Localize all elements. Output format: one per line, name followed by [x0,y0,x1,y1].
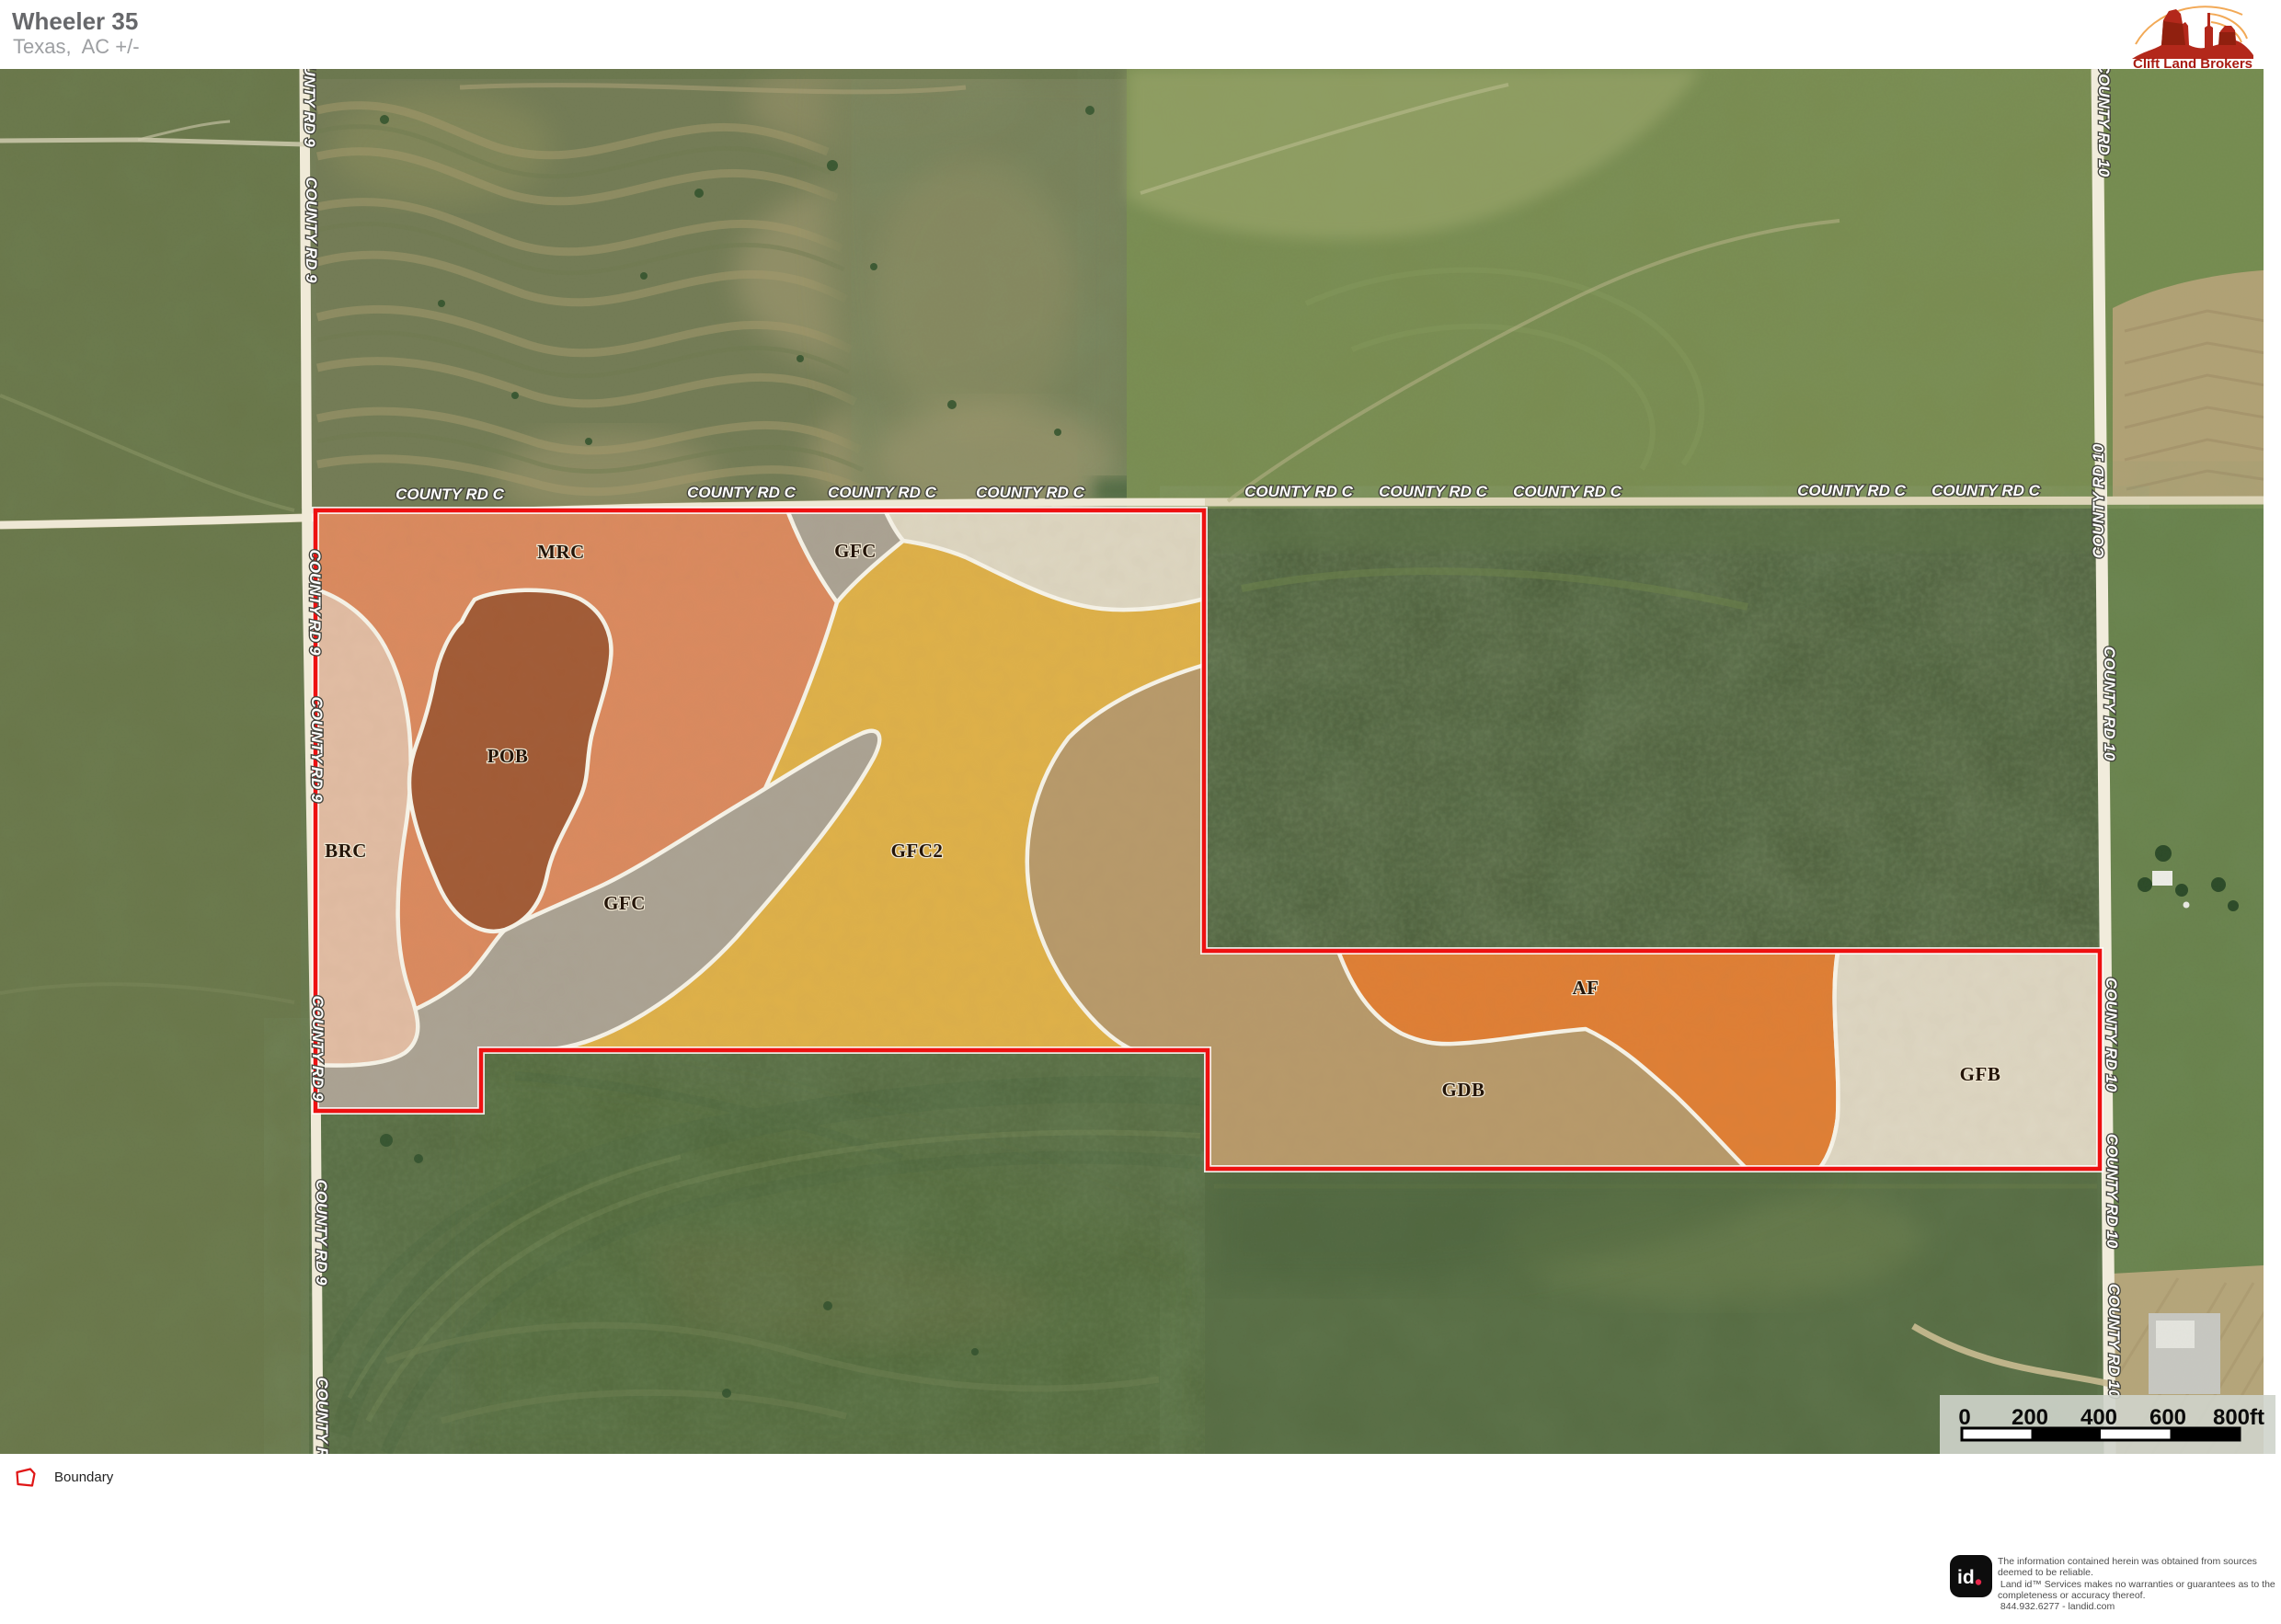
svg-text:COUNTY RD 9: COUNTY RD 9 [308,697,326,803]
svg-text:GFC2: GFC2 [891,840,944,862]
svg-text:id: id [1957,1567,1975,1588]
svg-text:800ft: 800ft [2213,1405,2264,1430]
svg-text:0: 0 [1958,1405,1970,1430]
svg-text:GFC: GFC [603,892,646,914]
svg-text:COUNTY RD 9: COUNTY RD 9 [306,550,324,656]
svg-text:GFC: GFC [834,540,877,562]
svg-text:COUNTY RD 10: COUNTY RD 10 [2103,978,2120,1092]
svg-text:COUNTY RD C: COUNTY RD C [1379,483,1487,500]
svg-text:COUNTY RD 10: COUNTY RD 10 [2090,443,2107,558]
svg-text:400: 400 [2080,1405,2117,1430]
svg-text:COUNTY RD C: COUNTY RD C [976,484,1084,501]
svg-text:200: 200 [2012,1405,2048,1430]
svg-text:AF: AF [1573,977,1599,999]
svg-text:COUNTY RD 10: COUNTY RD 10 [2095,69,2113,177]
svg-text:COUNTY RD 9: COUNTY RD 9 [313,1180,330,1286]
svg-text:COUNTY RD 10: COUNTY RD 10 [2101,646,2118,761]
svg-text:UNTY RD 9: UNTY RD 9 [301,69,318,147]
svg-text:POB: POB [487,745,529,767]
svg-text:COUNTY RD C: COUNTY RD C [1797,482,1906,499]
svg-text:COUNTY RD 9: COUNTY RD 9 [309,996,327,1102]
svg-text:MRC: MRC [537,541,585,563]
svg-text:GDB: GDB [1441,1079,1484,1101]
svg-text:COUNTY RD C: COUNTY RD C [1931,482,2040,499]
svg-text:COUNTY RD 10: COUNTY RD 10 [2105,1284,2123,1399]
svg-text:COUNTY RD 9: COUNTY RD 9 [314,1378,331,1454]
svg-text:GFB: GFB [1960,1063,2001,1085]
svg-text:600: 600 [2149,1405,2186,1430]
svg-text:COUNTY RD C: COUNTY RD C [1513,483,1622,500]
svg-text:COUNTY RD 10: COUNTY RD 10 [2103,1134,2121,1249]
svg-text:COUNTY RD 9: COUNTY RD 9 [303,177,320,283]
svg-text:BRC: BRC [325,840,367,862]
svg-text:COUNTY RD C: COUNTY RD C [687,484,796,501]
svg-text:COUNTY RD C: COUNTY RD C [395,486,504,503]
svg-text:COUNTY RD C: COUNTY RD C [828,484,936,501]
svg-text:COUNTY RD C: COUNTY RD C [1244,483,1353,500]
